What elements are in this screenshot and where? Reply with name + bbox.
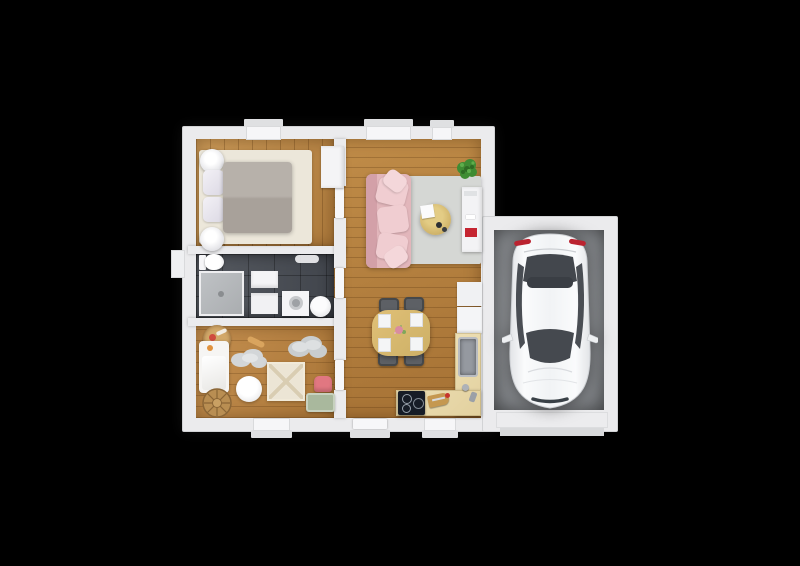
- toy-ball-icon: [209, 334, 216, 341]
- play-mat: [267, 362, 305, 401]
- bath-mat: [295, 255, 319, 263]
- red-media-box: [465, 228, 477, 237]
- window-sill: [251, 430, 292, 438]
- burner-icon: [402, 394, 412, 404]
- floor-plan-canvas: [0, 0, 800, 566]
- bathroom-cabinet: [251, 293, 278, 314]
- potted-plant-icon: [455, 158, 479, 180]
- pillow: [203, 197, 224, 222]
- toilet-icon: [205, 254, 224, 270]
- front-door: [353, 419, 387, 429]
- tomato-icon: [445, 393, 450, 398]
- bedside-lamp-icon: [200, 227, 224, 251]
- bathroom-window: [171, 250, 185, 278]
- garage-door: [496, 412, 608, 428]
- entry-step: [350, 430, 390, 438]
- kids-room-window: [253, 418, 290, 431]
- windshield: [526, 329, 574, 363]
- partition-wall-segment: [334, 298, 346, 360]
- kids-room-door: [335, 360, 344, 390]
- table-decor-icon: [442, 227, 447, 232]
- kitchen-sink: [458, 337, 478, 377]
- partition-wall-segment: [334, 390, 346, 418]
- flower-pillow-icon: [207, 345, 213, 351]
- wardrobe: [321, 146, 344, 188]
- sofa-cushion: [376, 204, 409, 235]
- pillow: [203, 170, 224, 195]
- burner-icon: [413, 398, 424, 409]
- laundry-basket: [310, 296, 331, 317]
- living-room-window-top-right: [432, 127, 452, 140]
- shower-drain-icon: [218, 291, 224, 297]
- table-flowers-icon: [395, 326, 403, 334]
- placemat: [410, 313, 423, 327]
- window-sill: [422, 430, 458, 438]
- double-bed-blanket: [223, 162, 292, 233]
- washer-door-icon: [289, 296, 303, 310]
- garage-apron: [500, 428, 604, 436]
- placemat: [410, 337, 423, 351]
- refrigerator: [457, 307, 482, 333]
- bedroom-window: [246, 126, 281, 140]
- remote-icon: [466, 215, 475, 219]
- partition-wall-segment: [334, 218, 346, 268]
- bedroom-door: [335, 186, 344, 218]
- cloud-rug-icon: [230, 347, 268, 370]
- cooktop: [398, 391, 425, 415]
- soundbar-icon: [464, 191, 477, 196]
- cloud-rug-icon: [286, 334, 328, 360]
- bathroom-door: [335, 268, 344, 298]
- car-top-view: [502, 231, 598, 411]
- woven-basket-icon: [202, 388, 232, 418]
- kitchen-cabinet: [457, 282, 482, 306]
- burner-icon: [402, 404, 411, 413]
- note-card: [420, 204, 435, 219]
- placemat: [378, 338, 391, 352]
- kids-chair: [314, 376, 332, 392]
- kids-table: [236, 376, 262, 402]
- toy-chest: [306, 393, 335, 412]
- vanity-sink: [251, 271, 278, 288]
- faucet-icon: [462, 384, 469, 391]
- tv-sideboard: [462, 187, 482, 252]
- placemat: [378, 314, 391, 328]
- toddler-bed-duvet: [202, 356, 226, 390]
- kitchen-window: [424, 418, 456, 431]
- living-room-window-top: [366, 126, 411, 140]
- table-decor-icon: [436, 222, 442, 228]
